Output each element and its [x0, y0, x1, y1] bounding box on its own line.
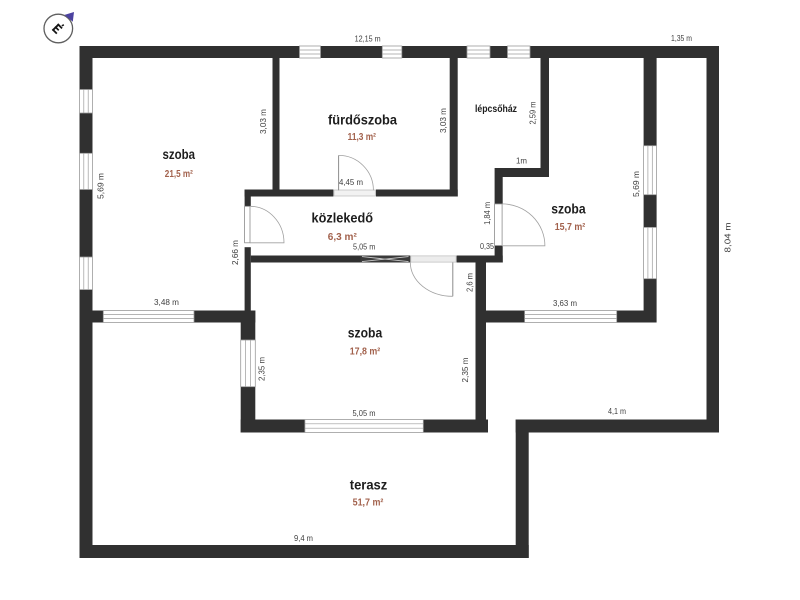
- svg-text:fürdőszoba: fürdőszoba: [328, 112, 397, 128]
- svg-text:2,6 m: 2,6 m: [465, 273, 474, 292]
- svg-text:2,66 m: 2,66 m: [231, 240, 240, 265]
- svg-text:2,35 m: 2,35 m: [461, 357, 470, 382]
- svg-text:1,84 m: 1,84 m: [483, 202, 492, 225]
- svg-text:2,59 m: 2,59 m: [528, 101, 537, 124]
- svg-text:szoba: szoba: [551, 200, 586, 216]
- svg-text:15,7 m²: 15,7 m²: [555, 221, 586, 233]
- svg-text:8,04 m: 8,04 m: [724, 222, 733, 252]
- svg-text:szoba: szoba: [163, 146, 196, 162]
- svg-text:5,69 m: 5,69 m: [632, 171, 641, 197]
- svg-text:3,03 m: 3,03 m: [259, 109, 268, 134]
- svg-text:4,1 m: 4,1 m: [608, 407, 626, 416]
- svg-text:1m: 1m: [516, 157, 527, 166]
- svg-text:5,05 m: 5,05 m: [353, 409, 376, 418]
- svg-text:szoba: szoba: [348, 325, 383, 341]
- svg-text:12,15 m: 12,15 m: [355, 35, 381, 44]
- svg-text:3,63 m: 3,63 m: [553, 299, 577, 308]
- svg-text:1,35 m: 1,35 m: [671, 34, 692, 43]
- svg-text:4,45 m: 4,45 m: [339, 178, 363, 187]
- svg-text:2,35 m: 2,35 m: [257, 357, 266, 381]
- svg-text:terasz: terasz: [350, 477, 388, 493]
- svg-text:0,35: 0,35: [480, 242, 494, 251]
- svg-text:3,03 m: 3,03 m: [439, 108, 448, 133]
- svg-text:6,3 m²: 6,3 m²: [328, 231, 357, 243]
- svg-text:5,05 m: 5,05 m: [353, 243, 376, 252]
- svg-text:17,8 m²: 17,8 m²: [350, 346, 381, 358]
- svg-text:51,7 m²: 51,7 m²: [353, 496, 384, 508]
- svg-text:21,5 m²: 21,5 m²: [165, 168, 193, 180]
- svg-text:lépcsőház: lépcsőház: [475, 103, 517, 115]
- svg-text:3,48 m: 3,48 m: [154, 298, 179, 307]
- svg-text:9,4 m: 9,4 m: [294, 534, 313, 543]
- svg-text:5,69 m: 5,69 m: [96, 173, 105, 199]
- svg-text:közlekedő: közlekedő: [312, 210, 374, 226]
- svg-text:11,3 m²: 11,3 m²: [348, 131, 377, 143]
